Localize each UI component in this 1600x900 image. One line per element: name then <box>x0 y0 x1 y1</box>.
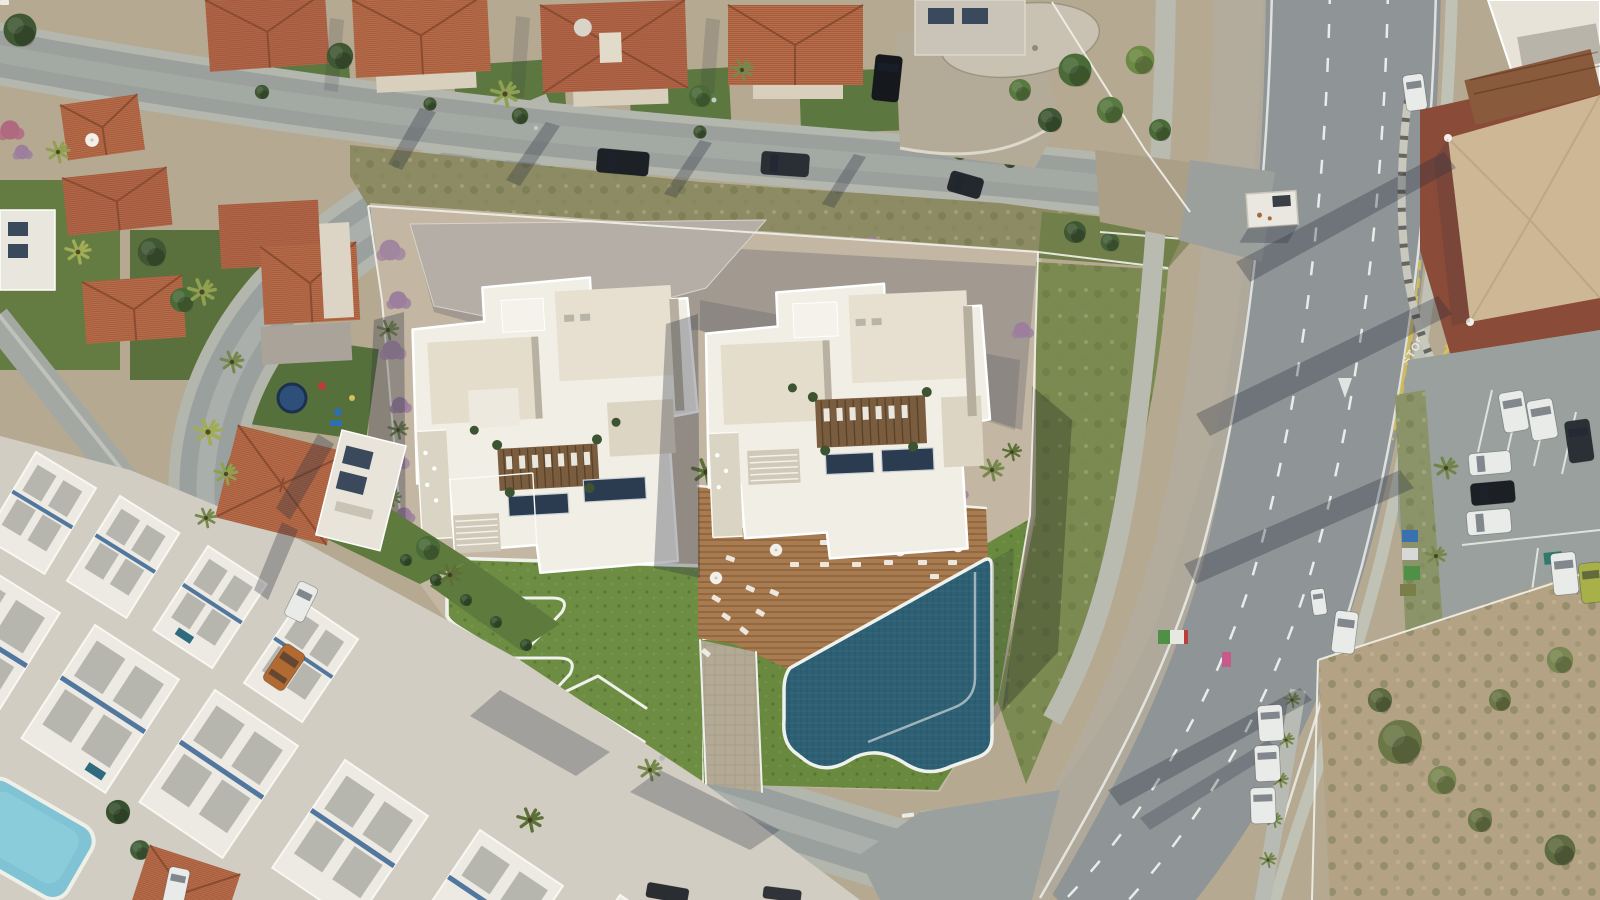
site-walkway <box>700 640 762 792</box>
pergola-east-block <box>815 395 927 448</box>
aerial-photo: STOP <box>0 0 1600 900</box>
rooftop-pool <box>881 448 934 472</box>
aerial-photo-stage: STOP <box>0 0 1600 900</box>
stair-core <box>453 513 501 554</box>
white-car-main-road <box>1331 610 1359 654</box>
parking-white-h2 <box>1466 508 1512 536</box>
white-car-parked-3 <box>1250 787 1276 824</box>
white-car-parked-1 <box>1257 704 1284 742</box>
parking-dark <box>1564 419 1595 464</box>
white-car-parked-2 <box>1254 745 1281 782</box>
parking-white-3 <box>1550 551 1579 595</box>
trampoline <box>278 384 306 412</box>
black-suv <box>871 54 903 103</box>
rooftop-pool <box>508 493 569 516</box>
stair-core <box>747 449 800 485</box>
yellow-green-car <box>1578 562 1600 604</box>
parked-dark-car <box>760 151 809 177</box>
west-terrace <box>708 432 743 537</box>
flat-roof-building-top <box>915 0 1025 55</box>
parked-black-car <box>596 148 650 176</box>
parking-white-h1 <box>1468 450 1512 476</box>
white-car-road-top <box>1402 73 1428 112</box>
west-terrace <box>416 430 452 540</box>
parking-black-h <box>1470 480 1516 506</box>
rooftop-pool <box>825 452 874 474</box>
